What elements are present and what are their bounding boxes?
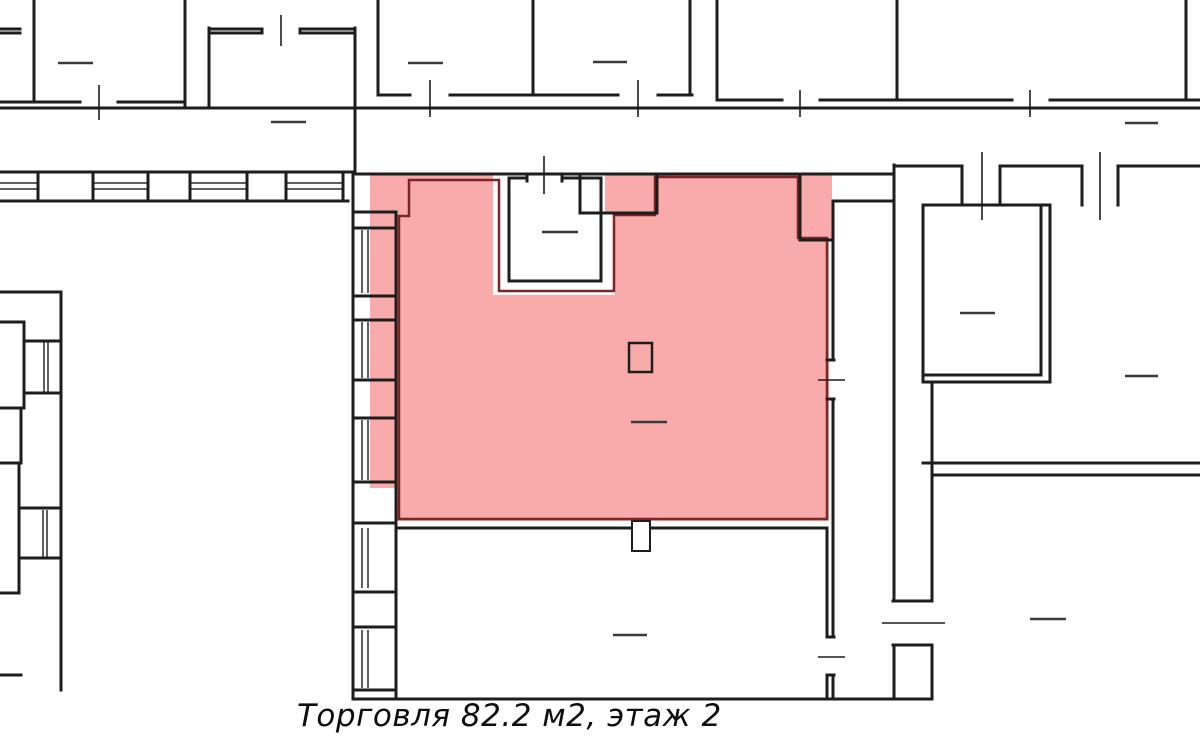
floor-plan-page: Торговля 82.2 м2, этаж 2 [0,0,1200,745]
column-rect [632,521,650,551]
floor-plan-drawing [0,0,1200,745]
room-caption: Торговля 82.2 м2, этаж 2 [297,699,722,733]
window-glazing-lines [0,183,368,688]
